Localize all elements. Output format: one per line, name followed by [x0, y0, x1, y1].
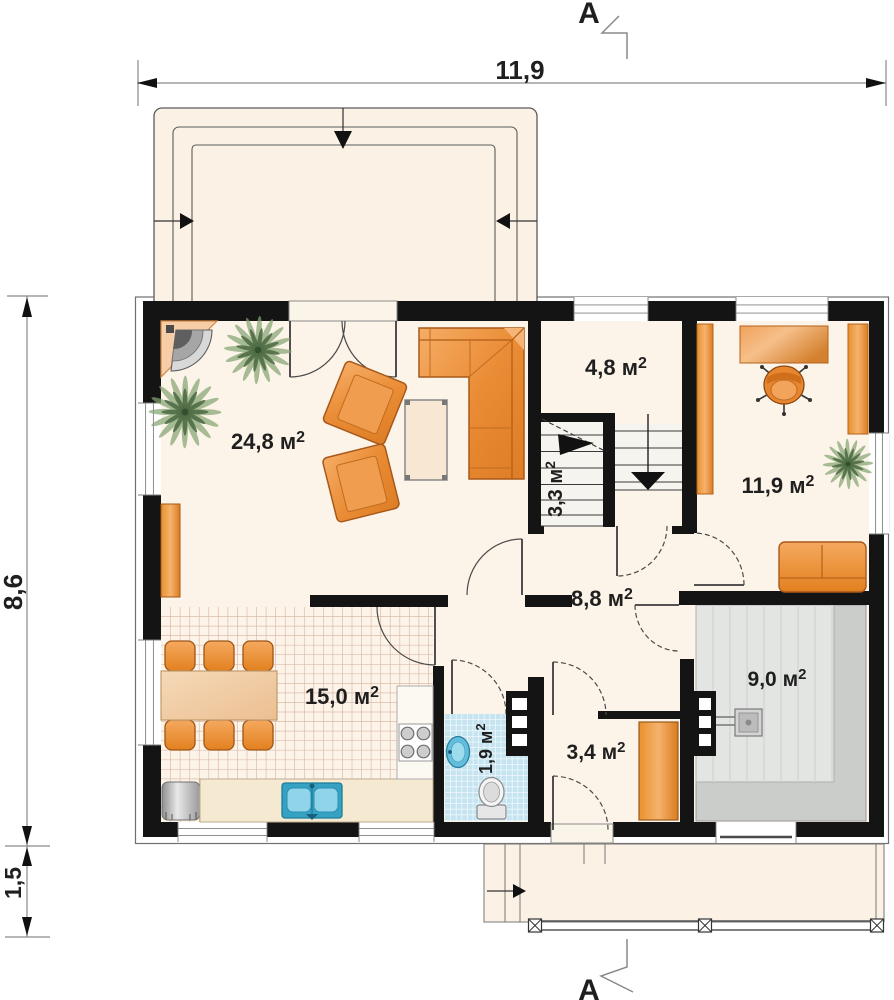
svg-text:24,8 м2: 24,8 м2	[231, 429, 305, 454]
svg-text:3,4 м2: 3,4 м2	[567, 739, 626, 764]
svg-text:1,9 м2: 1,9 м2	[473, 723, 496, 774]
svg-text:A: A	[578, 974, 600, 1000]
svg-text:8,8 м2: 8,8 м2	[571, 586, 633, 611]
svg-text:8,6: 8,6	[0, 574, 28, 610]
svg-text:11,9 м2: 11,9 м2	[742, 473, 815, 498]
svg-text:4,8 м2: 4,8 м2	[585, 355, 647, 380]
svg-text:9,0 м2: 9,0 м2	[748, 666, 807, 691]
svg-text:11,9: 11,9	[495, 55, 544, 85]
svg-text:3,3 м2: 3,3 м2	[542, 461, 567, 517]
svg-text:A: A	[578, 0, 600, 30]
svg-text:1,5: 1,5	[0, 867, 26, 899]
svg-text:15,0 м2: 15,0 м2	[305, 684, 379, 709]
